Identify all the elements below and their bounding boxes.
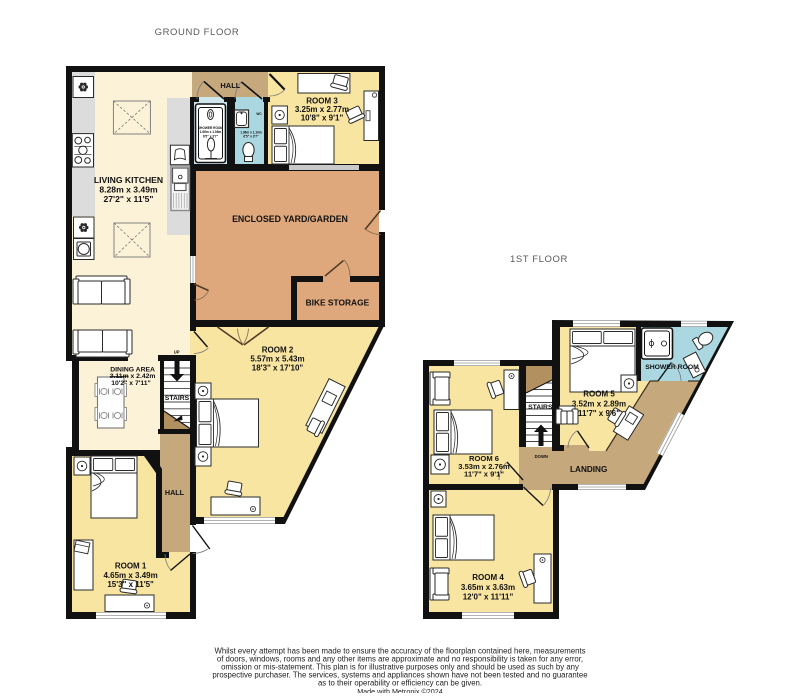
- svg-text:UP: UP: [174, 350, 180, 355]
- svg-text:STAIRS: STAIRS: [165, 395, 190, 402]
- svg-text:HALL: HALL: [220, 81, 240, 90]
- svg-text:4.65m x 3.49m: 4.65m x 3.49m: [103, 571, 157, 580]
- svg-text:LIVING KITCHEN: LIVING KITCHEN: [94, 175, 163, 185]
- svg-text:6'5" x 3'7": 6'5" x 3'7": [203, 134, 219, 138]
- svg-text:ROOM 1: ROOM 1: [115, 562, 147, 571]
- svg-text:18'3" x 17'10": 18'3" x 17'10": [252, 364, 304, 373]
- svg-text:8.28m x 3.49m: 8.28m x 3.49m: [99, 185, 158, 195]
- svg-text:11'7" x 9'1": 11'7" x 9'1": [464, 470, 504, 479]
- svg-text:10'8" x 9'1": 10'8" x 9'1": [301, 113, 344, 122]
- svg-text:12'0" x 11'11": 12'0" x 11'11": [463, 593, 514, 602]
- svg-text:10'2" x 7'11": 10'2" x 7'11": [111, 380, 151, 387]
- svg-text:1ST FLOOR: 1ST FLOOR: [510, 254, 568, 265]
- svg-text:5.57m x 5.43m: 5.57m x 5.43m: [250, 355, 304, 364]
- svg-text:SHOWER ROOM: SHOWER ROOM: [645, 364, 699, 371]
- svg-text:Made with Metropix ©2024: Made with Metropix ©2024: [357, 687, 443, 693]
- svg-text:15'3" x 11'5": 15'3" x 11'5": [107, 580, 154, 589]
- svg-text:3.52m x 2.89m: 3.52m x 2.89m: [572, 399, 626, 408]
- svg-text:3.65m x 3.63m: 3.65m x 3.63m: [461, 583, 515, 592]
- svg-text:ROOM 2: ROOM 2: [262, 346, 294, 355]
- svg-text:HALL: HALL: [165, 488, 185, 497]
- svg-text:27'2" x 11'5": 27'2" x 11'5": [104, 194, 154, 204]
- svg-text:WC: WC: [256, 112, 262, 116]
- svg-text:ENCLOSED YARD/GARDEN: ENCLOSED YARD/GARDEN: [232, 214, 348, 224]
- svg-text:STAIRS: STAIRS: [528, 404, 553, 411]
- svg-text:11'7" x 9'6": 11'7" x 9'6": [578, 409, 620, 418]
- svg-text:6'5" x 3'7": 6'5" x 3'7": [243, 135, 259, 139]
- svg-text:BIKE STORAGE: BIKE STORAGE: [306, 298, 370, 308]
- svg-text:DOWN: DOWN: [535, 454, 548, 459]
- svg-text:LANDING: LANDING: [570, 465, 607, 474]
- svg-text:ROOM 5: ROOM 5: [583, 390, 615, 399]
- svg-text:ROOM 4: ROOM 4: [472, 573, 504, 582]
- svg-text:GROUND FLOOR: GROUND FLOOR: [155, 27, 240, 38]
